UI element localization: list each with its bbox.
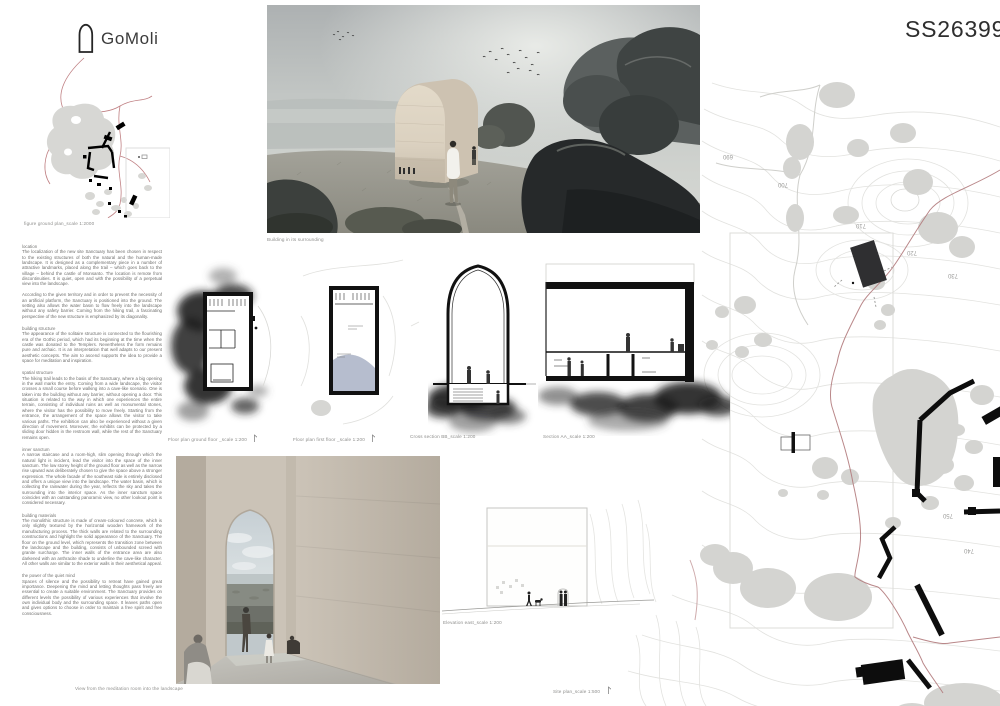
section-body: A narrow staircase and a room-high, slim… — [22, 452, 162, 505]
detail-extent-frame — [126, 148, 170, 218]
plan-outline — [205, 294, 251, 389]
scale-figures — [567, 333, 684, 376]
plan-first-floor — [293, 256, 425, 436]
boulder — [311, 400, 331, 416]
project-description-column: location The localization of the new sit… — [22, 244, 162, 623]
svg-text:750: 750 — [942, 512, 953, 518]
section-body: Spaces of silence and the possibility to… — [22, 579, 162, 616]
interior-render-caption: View from the meditation room into the l… — [75, 686, 183, 691]
figure-ground-plan — [24, 56, 170, 218]
site-plan-caption: Site plan_scale 1:500 — [553, 686, 611, 694]
right-wall — [286, 456, 440, 684]
text-section-spatial-structure: spatial structure The hiking trail leads… — [22, 370, 162, 440]
entry-code: SS26399 — [905, 16, 1000, 43]
terrain-blobs — [47, 104, 152, 217]
north-arrow-icon — [370, 434, 375, 442]
svg-text:690: 690 — [722, 153, 733, 159]
arch-section-outline — [433, 266, 526, 404]
second-person — [472, 146, 476, 165]
interior-render — [176, 456, 440, 684]
section-body: The hiking trail leads to the basis of t… — [22, 376, 162, 440]
cross-section-caption: Cross section BB_scale 1:200 — [410, 434, 475, 439]
charcoal-terrain — [538, 382, 730, 431]
svg-text:730: 730 — [947, 272, 958, 278]
north-arrow-icon — [252, 434, 257, 442]
text-section-building-materials: building materials The monolithic struct… — [22, 513, 162, 567]
text-section-quiet-mind: the power of the quiet mind Spaces of si… — [22, 573, 162, 616]
north-arrow-icon — [606, 686, 611, 694]
figure-ground-caption: figure ground plan_scale 1:2000 — [24, 221, 94, 226]
long-section-caption: Section AA_scale 1:200 — [543, 434, 595, 439]
arch-view — [224, 510, 274, 656]
svg-text:700: 700 — [777, 181, 788, 187]
section-body: The monolithic structure is made of crea… — [22, 518, 162, 566]
project-logo-text: GoMoli — [101, 29, 158, 49]
elevation-east — [440, 494, 662, 630]
main-render-caption: Building in its surrounding — [267, 237, 324, 242]
contour-lines — [590, 500, 656, 604]
section-body: The localization of the new site Sanctua… — [22, 249, 162, 318]
sanctuary-building — [395, 79, 478, 188]
svg-text:740: 740 — [963, 547, 974, 553]
svg-text:710: 710 — [855, 222, 866, 228]
elevation-caption: Elevation east_scale 1:200 — [443, 620, 502, 625]
main-render — [267, 5, 700, 233]
ground-floor-caption: Floor plan ground floor _scale 1:200 — [168, 434, 257, 442]
svg-text:720: 720 — [906, 249, 917, 255]
text-section-inner-sanctum: inner sanctum A narrow staircase and a r… — [22, 447, 162, 506]
section-bb — [428, 256, 548, 436]
plan-ground-floor — [163, 256, 295, 436]
map-marker — [138, 155, 147, 159]
entry-marker — [252, 316, 255, 321]
first-floor-caption: Floor plan first floor _scale 1:200 — [293, 434, 375, 442]
section-aa — [538, 256, 730, 436]
presentation-board: 690 700 710 720 730 750 740 Site plan_sc… — [0, 0, 1000, 706]
logo-arch-icon — [76, 23, 96, 54]
section-body: The appearance of the solitaire structur… — [22, 331, 162, 363]
text-section-building-structure: building structure The appearance of the… — [22, 326, 162, 363]
text-section-location: location The localization of the new sit… — [22, 244, 162, 319]
